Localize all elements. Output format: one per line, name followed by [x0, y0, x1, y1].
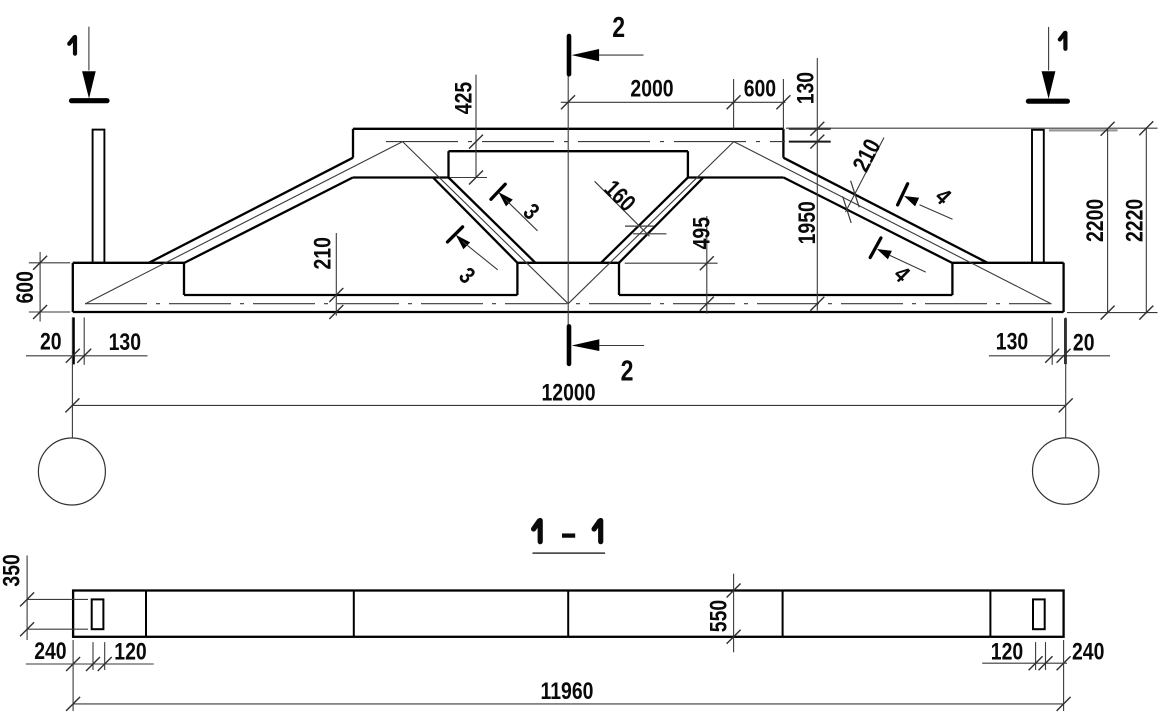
svg-text:130: 130: [996, 328, 1028, 355]
svg-text:11960: 11960: [541, 677, 594, 704]
svg-text:600: 600: [744, 75, 776, 102]
svg-text:240: 240: [34, 637, 66, 664]
svg-text:1950: 1950: [793, 201, 820, 244]
svg-text:2000: 2000: [630, 75, 673, 102]
svg-text:130: 130: [109, 328, 141, 355]
svg-text:2: 2: [621, 356, 634, 387]
svg-text:12000: 12000: [541, 379, 595, 406]
svg-text:130: 130: [792, 72, 819, 104]
svg-text:240: 240: [1072, 638, 1104, 665]
svg-text:120: 120: [991, 638, 1023, 665]
svg-text:425: 425: [450, 82, 477, 114]
svg-text:2200: 2200: [1081, 199, 1108, 242]
svg-text:2220: 2220: [1121, 199, 1148, 242]
svg-text:20: 20: [40, 328, 62, 355]
svg-text:550: 550: [705, 600, 732, 632]
svg-text:120: 120: [114, 638, 146, 665]
svg-text:495: 495: [688, 217, 715, 249]
svg-text:2: 2: [612, 13, 625, 44]
svg-text:350: 350: [0, 554, 25, 586]
svg-text:210: 210: [309, 237, 336, 269]
svg-text:600: 600: [11, 271, 38, 303]
svg-text:20: 20: [1073, 329, 1095, 356]
